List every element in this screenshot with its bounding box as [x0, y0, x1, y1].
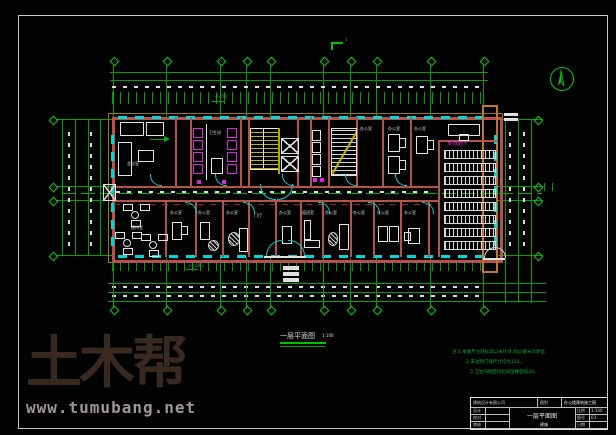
section-marker-line: [331, 42, 333, 50]
sofa-chair: [123, 248, 133, 255]
title-block-line: [575, 408, 576, 429]
room-label: 办公室: [170, 211, 182, 215]
room-label: 办公室: [404, 211, 416, 215]
furniture-sofa: [118, 142, 132, 176]
section-marker-number: 1: [345, 38, 348, 42]
chair: [399, 138, 406, 148]
room-label: 会议室: [127, 162, 139, 166]
title-block-line: [471, 407, 607, 408]
grid-line: [88, 119, 89, 256]
entrance-step: [283, 278, 299, 282]
grid-line: [246, 258, 247, 308]
sofa-chair: [141, 234, 151, 241]
corridor-wall: [114, 186, 438, 188]
toilet-fixture: [227, 140, 237, 150]
elevation-label: ±0.000: [188, 264, 203, 268]
dimension-text-row: [112, 295, 484, 297]
titleblock-scale-label: 比例: [577, 409, 585, 413]
stair-rail: [263, 128, 264, 168]
furniture-table: [138, 150, 154, 162]
sofa-chair: [140, 204, 150, 211]
dimension-text-col: [90, 128, 92, 246]
grid-line: [376, 258, 377, 308]
grid-line: [323, 258, 324, 308]
chair: [427, 140, 434, 150]
elevation-tick: [212, 101, 224, 102]
room-label: 办公室: [198, 211, 210, 215]
coffee-table: [131, 211, 139, 219]
direction-arrow-icon: [164, 136, 170, 142]
exterior-step: [504, 113, 518, 116]
fixture: [312, 166, 321, 177]
note-line: 注:1.本图尺寸除标高以米计外,均以毫米为单位;: [452, 351, 546, 356]
desk: [378, 226, 388, 242]
titleblock-row-label: 校对: [473, 416, 481, 420]
hall-wall: [438, 140, 440, 257]
toilet-fixture: [193, 140, 203, 150]
sofa-chair: [123, 204, 133, 211]
dimension-ticks: [112, 92, 486, 104]
dimension-line: [108, 292, 546, 293]
entrance-step: [283, 272, 299, 276]
entrance-step: [283, 266, 299, 270]
chair: [404, 232, 411, 241]
titleblock-company: 建筑设计有限公司: [473, 401, 505, 405]
seat-row: [444, 189, 496, 198]
desk: [200, 222, 210, 240]
seat-row: [444, 176, 496, 185]
grid-line: [62, 119, 63, 256]
partition-wall: [350, 202, 352, 257]
grid-line: [430, 258, 431, 308]
grid-line: [75, 119, 76, 256]
toilet-fixture: [197, 180, 201, 184]
partition-wall: [165, 202, 167, 257]
note-line: 3.卫生间地面均比同层楼面低20。: [470, 371, 539, 376]
titleblock-row-label: 设计: [473, 409, 481, 413]
titleblock-project: 办公楼建筑施工图: [564, 401, 596, 405]
desk: [304, 240, 320, 248]
elevation-tick: [186, 269, 198, 270]
window-strip: [118, 116, 482, 119]
grid-line: [220, 258, 221, 308]
seat-row: [444, 228, 496, 237]
seat-row: [444, 202, 496, 211]
side-threshold: [483, 258, 505, 260]
room-label: 办公室: [353, 211, 365, 215]
room-label: 办公室: [360, 127, 372, 131]
podium-step: [459, 134, 469, 141]
staircase: [331, 128, 357, 176]
room-label: 办公室: [388, 127, 400, 131]
titleblock-stage: 建施: [540, 423, 548, 427]
partition-wall: [175, 117, 177, 186]
chair: [399, 160, 406, 170]
title-block-line: [561, 398, 562, 407]
elevator: [281, 156, 299, 172]
partition-wall: [190, 117, 192, 186]
toilet-fixture: [227, 128, 237, 138]
floor-plan-title: 一层平面图: [280, 333, 315, 340]
titleblock-date-label: 日期: [577, 423, 585, 427]
dimension-text-row: [112, 86, 486, 88]
seat-row: [444, 163, 496, 172]
title-underline: [280, 342, 326, 344]
partition-wall: [410, 117, 412, 186]
titleblock-scale: 1:100: [591, 409, 603, 413]
partition-wall: [328, 117, 330, 186]
cabinet: [339, 224, 349, 250]
dimension-line: [108, 283, 546, 284]
staircase: [250, 128, 279, 170]
toilet-fixture: [193, 128, 203, 138]
title-block-line: [537, 398, 538, 407]
dimension-line: [110, 80, 488, 81]
partition-wall: [400, 202, 402, 257]
desk: [389, 226, 399, 242]
title-block-line: [485, 408, 486, 429]
grid-line: [113, 258, 114, 308]
dimension-text-row: [112, 286, 484, 288]
dimension-text-col: [523, 128, 525, 246]
toilet-fixture: [313, 178, 317, 182]
room-label: 值班室: [302, 211, 314, 215]
plant: [208, 240, 219, 251]
toilet-fixture: [227, 164, 237, 174]
toilet-sink: [211, 158, 223, 174]
sofa-chair: [149, 250, 159, 257]
partition-wall: [382, 117, 384, 186]
seat-row: [444, 150, 496, 159]
coffee-table: [123, 239, 131, 247]
partition-wall: [240, 117, 242, 186]
partition-wall: [222, 202, 224, 257]
room-label: 门厅: [254, 214, 262, 218]
drain-hatch-symbol: [544, 183, 558, 191]
north-arrow-icon: [550, 67, 574, 91]
elevator: [281, 138, 299, 154]
note-line: 2.未注明门垛尺寸均为120。: [466, 361, 524, 366]
sofa-chair: [115, 232, 125, 239]
room-label: 办公室: [279, 211, 291, 215]
desk: [304, 220, 311, 240]
titleblock-row-label: 审核: [473, 423, 481, 427]
titleblock-no-label: 图号: [577, 416, 585, 420]
toilet-fixture: [193, 164, 203, 174]
room-label: 多功能厅: [447, 142, 467, 147]
cad-canvas: -0.450 1: [0, 0, 616, 435]
plant: [328, 232, 338, 246]
dimension-line: [108, 301, 546, 302]
toilet-fixture: [227, 152, 237, 162]
watermark-url: www.tumubang.net: [26, 400, 196, 416]
toilet-partition: [206, 124, 207, 180]
grid-line: [100, 119, 101, 256]
title-block-line: [589, 408, 590, 429]
title-underline: [280, 346, 326, 347]
dimension-text-col: [68, 128, 70, 246]
shaft-wall: [278, 128, 280, 174]
grid-line: [531, 119, 532, 303]
exterior-step: [504, 118, 518, 121]
entrance-threshold: [264, 256, 306, 258]
grid-line: [505, 119, 506, 303]
elevation-label: -0.450: [214, 95, 227, 99]
titleblock-no: 03: [591, 416, 596, 420]
grid-line: [518, 119, 519, 303]
room-label: 办公室: [226, 211, 238, 215]
titleblock-drawing-name: 一层平面图: [527, 414, 557, 420]
fixture: [312, 154, 321, 165]
titleblock-stage-label: 图别: [540, 401, 548, 405]
title-block: 建筑设计有限公司 图别 办公楼建筑施工图 设计 校对 审核 一层平面图 比例 1…: [470, 397, 608, 430]
watermark-brand: 土木帮: [26, 336, 185, 392]
direction-arrow-line: [150, 139, 164, 140]
cabinet: [239, 228, 248, 252]
dimension-line: [56, 119, 112, 120]
furniture-cabinet: [146, 122, 164, 136]
end-door: [103, 184, 116, 201]
title-block-line: [509, 408, 510, 429]
chair: [181, 226, 188, 235]
furniture-cabinet: [120, 122, 144, 136]
seat-row: [444, 215, 496, 224]
coffee-table: [149, 241, 157, 249]
dimension-text-col: [509, 128, 511, 246]
fixture: [312, 130, 321, 141]
room-label: 接待室: [131, 226, 143, 230]
dimension-line: [110, 72, 488, 73]
grid-line: [166, 258, 167, 308]
room-label: 办公室: [414, 127, 426, 131]
grid-line: [270, 258, 271, 308]
sofa-chair: [158, 234, 168, 241]
floor-plan-scale: 1:100: [322, 334, 334, 338]
dimension-line: [56, 255, 112, 256]
grid-line: [350, 258, 351, 308]
stair-rail: [332, 130, 357, 174]
toilet-fixture: [320, 178, 324, 182]
toilet-fixture: [193, 152, 203, 162]
room-label: 卫生间: [209, 131, 221, 135]
fixture: [312, 142, 321, 153]
